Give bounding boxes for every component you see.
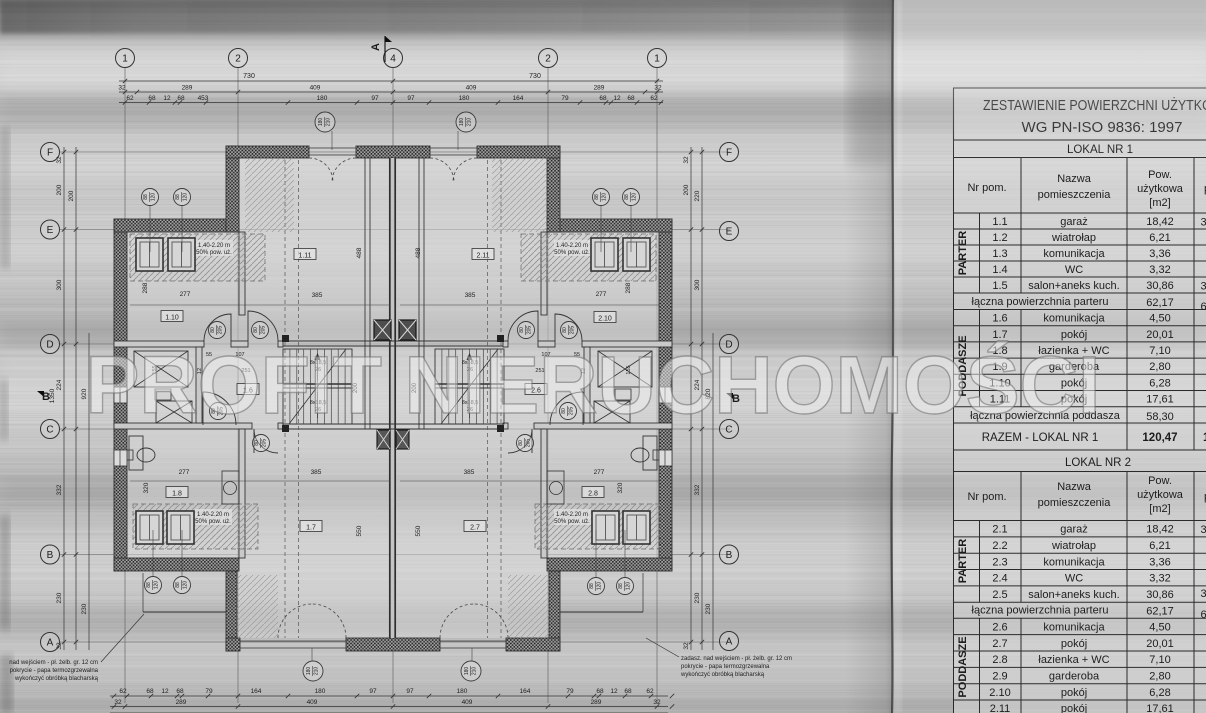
svg-text:2.8: 2.8 xyxy=(992,654,1007,666)
svg-text:210: 210 xyxy=(314,667,320,676)
svg-text:2.9: 2.9 xyxy=(992,671,1007,683)
svg-text:12: 12 xyxy=(613,95,621,102)
svg-text:58,30: 58,30 xyxy=(1146,411,1174,423)
svg-text:277: 277 xyxy=(596,291,607,298)
svg-text:210: 210 xyxy=(467,118,473,127)
svg-text:2.2: 2.2 xyxy=(992,540,1007,552)
svg-text:6: 6 xyxy=(1201,609,1206,621)
svg-text:3,32: 3,32 xyxy=(1149,264,1170,276)
svg-text:1.40-2.20 m: 1.40-2.20 m xyxy=(556,243,588,249)
svg-text:62: 62 xyxy=(650,95,658,102)
svg-text:F: F xyxy=(47,148,53,159)
svg-text:200: 200 xyxy=(68,190,75,201)
svg-text:1.3: 1.3 xyxy=(992,248,1007,260)
svg-text:1.1: 1.1 xyxy=(992,216,1007,228)
svg-text:224: 224 xyxy=(56,379,63,390)
svg-text:pokrycie - papa termozgrzewaln: pokrycie - papa termozgrzewalna xyxy=(10,668,99,674)
svg-text:88: 88 xyxy=(146,582,152,588)
svg-text:120: 120 xyxy=(597,582,603,591)
svg-text:A: A xyxy=(47,638,54,649)
svg-text:2.7: 2.7 xyxy=(992,638,1007,650)
svg-text:PARTER: PARTER xyxy=(957,539,969,583)
svg-text:E: E xyxy=(726,227,733,238)
svg-text:332: 332 xyxy=(56,484,63,495)
svg-text:Nazwa: Nazwa xyxy=(1057,481,1092,493)
svg-text:80: 80 xyxy=(210,327,216,333)
svg-text:88: 88 xyxy=(175,194,181,200)
svg-text:pokój: pokój xyxy=(1061,638,1087,650)
svg-text:1.7: 1.7 xyxy=(306,525,316,532)
svg-text:32: 32 xyxy=(653,699,661,706)
svg-text:B: B xyxy=(47,550,54,561)
svg-text:komunikacja: komunikacja xyxy=(1043,248,1105,260)
svg-text:277: 277 xyxy=(594,469,605,476)
svg-text:300: 300 xyxy=(694,279,701,290)
svg-text:wiatrołap: wiatrołap xyxy=(1051,540,1096,552)
svg-text:3: 3 xyxy=(1201,281,1206,293)
svg-text:62,17: 62,17 xyxy=(1146,606,1174,618)
svg-text:180: 180 xyxy=(459,118,465,127)
svg-text:2: 2 xyxy=(235,54,241,65)
svg-text:7,10: 7,10 xyxy=(1149,654,1170,666)
svg-text:277: 277 xyxy=(179,469,190,476)
svg-text:3,32: 3,32 xyxy=(1149,573,1170,585)
svg-text:2,80: 2,80 xyxy=(1149,361,1170,373)
svg-text:salon+aneks kuch.: salon+aneks kuch. xyxy=(1028,589,1119,601)
svg-text:WC: WC xyxy=(1065,573,1083,585)
svg-text:Pow.: Pow. xyxy=(1148,169,1172,181)
svg-text:288: 288 xyxy=(625,282,632,293)
svg-text:[m2]: [m2] xyxy=(1149,503,1170,515)
svg-text:180: 180 xyxy=(464,667,470,676)
svg-text:1.40-2.20 m: 1.40-2.20 m xyxy=(556,512,588,518)
svg-text:210: 210 xyxy=(326,118,332,127)
svg-text:288: 288 xyxy=(142,282,149,293)
svg-text:1: 1 xyxy=(122,54,128,65)
svg-text:205: 205 xyxy=(262,439,268,448)
svg-text:180: 180 xyxy=(306,667,312,676)
svg-text:200: 200 xyxy=(56,184,63,195)
svg-text:2: 2 xyxy=(545,54,551,65)
svg-text:32: 32 xyxy=(56,156,63,164)
svg-text:2.8: 2.8 xyxy=(588,491,598,498)
svg-text:289: 289 xyxy=(182,85,193,92)
svg-text:użytkowa: użytkowa xyxy=(1137,489,1184,501)
svg-text:50% pow. uż.: 50% pow. uż. xyxy=(195,519,231,525)
svg-text:88: 88 xyxy=(175,582,181,588)
svg-text:488: 488 xyxy=(415,247,422,258)
svg-text:komunikacja: komunikacja xyxy=(1043,556,1105,568)
svg-text:A: A xyxy=(370,43,382,51)
svg-text:2.5: 2.5 xyxy=(992,589,1007,601)
svg-text:453: 453 xyxy=(198,95,209,102)
svg-text:12: 12 xyxy=(610,688,618,695)
svg-text:pokój: pokój xyxy=(1061,329,1087,341)
svg-text:164: 164 xyxy=(513,95,524,102)
svg-text:120: 120 xyxy=(602,193,608,202)
svg-text:1.6: 1.6 xyxy=(992,313,1007,325)
svg-text:205: 205 xyxy=(526,439,532,448)
svg-text:730: 730 xyxy=(529,73,541,80)
svg-text:205: 205 xyxy=(527,326,533,335)
svg-text:289: 289 xyxy=(176,699,187,706)
svg-text:385: 385 xyxy=(465,292,476,299)
svg-text:3,36: 3,36 xyxy=(1149,248,1170,260)
svg-text:230: 230 xyxy=(56,592,63,603)
svg-text:79: 79 xyxy=(561,95,569,102)
svg-text:2,80: 2,80 xyxy=(1149,671,1170,683)
svg-text:salon+aneks kuch.: salon+aneks kuch. xyxy=(1028,280,1119,292)
svg-text:409: 409 xyxy=(310,85,321,92)
svg-text:PROFIT NIERUCHOMOŚCI: PROFIT NIERUCHOMOŚCI xyxy=(86,340,1101,431)
svg-text:32: 32 xyxy=(114,699,122,706)
svg-text:68: 68 xyxy=(596,688,604,695)
svg-text:4,50: 4,50 xyxy=(1149,313,1170,325)
svg-text:F: F xyxy=(726,148,732,159)
svg-text:użytkowa: użytkowa xyxy=(1137,183,1184,195)
svg-text:80: 80 xyxy=(254,440,260,446)
svg-text:68: 68 xyxy=(599,95,607,102)
svg-text:3: 3 xyxy=(1201,524,1206,536)
svg-text:88: 88 xyxy=(624,194,630,200)
svg-text:164: 164 xyxy=(520,688,531,695)
svg-text:68: 68 xyxy=(177,95,185,102)
svg-text:230: 230 xyxy=(694,592,701,603)
svg-text:120: 120 xyxy=(632,193,638,202)
svg-text:6,28: 6,28 xyxy=(1149,377,1170,389)
svg-text:210: 210 xyxy=(472,667,478,676)
svg-text:PODDASZE: PODDASZE xyxy=(957,636,969,697)
svg-text:garaż: garaż xyxy=(1060,524,1088,536)
svg-text:180: 180 xyxy=(315,688,326,695)
svg-text:7,10: 7,10 xyxy=(1149,345,1170,357)
svg-text:180: 180 xyxy=(317,95,328,102)
svg-text:220: 220 xyxy=(694,190,701,201)
svg-text:205: 205 xyxy=(218,326,224,335)
svg-text:88: 88 xyxy=(143,194,149,200)
svg-text:zadasz. nad wejściem - pł. żel: zadasz. nad wejściem - pł. żelb. gr. 12 … xyxy=(681,656,792,662)
svg-text:WC: WC xyxy=(1065,264,1083,276)
svg-text:PARTER: PARTER xyxy=(957,231,969,275)
svg-text:68: 68 xyxy=(146,688,154,695)
svg-text:320: 320 xyxy=(617,482,624,493)
svg-text:Nr pom.: Nr pom. xyxy=(967,182,1006,194)
svg-text:32: 32 xyxy=(683,156,690,164)
svg-text:68: 68 xyxy=(176,688,184,695)
svg-text:LOKAL NR 2: LOKAL NR 2 xyxy=(1065,457,1131,469)
svg-text:62: 62 xyxy=(646,688,654,695)
svg-text:1.10: 1.10 xyxy=(165,315,179,322)
svg-text:komunikacja: komunikacja xyxy=(1043,313,1105,325)
svg-text:1.40-2.20 m: 1.40-2.20 m xyxy=(197,512,229,518)
svg-text:2.10: 2.10 xyxy=(598,316,612,323)
svg-text:2.1: 2.1 xyxy=(992,524,1007,536)
svg-text:A: A xyxy=(726,637,733,648)
svg-text:1: 1 xyxy=(654,54,660,65)
svg-text:3: 3 xyxy=(1201,217,1206,229)
svg-text:88: 88 xyxy=(594,194,600,200)
svg-text:12: 12 xyxy=(163,95,171,102)
svg-text:1.5: 1.5 xyxy=(992,280,1007,292)
svg-text:409: 409 xyxy=(466,85,477,92)
svg-text:pokrycie - papa termozgrzewaln: pokrycie - papa termozgrzewalna xyxy=(681,664,770,670)
svg-text:32: 32 xyxy=(683,642,690,650)
svg-text:2.10: 2.10 xyxy=(989,687,1010,699)
svg-text:32: 32 xyxy=(654,85,662,92)
svg-text:120,47: 120,47 xyxy=(1142,432,1177,444)
svg-text:385: 385 xyxy=(464,469,475,476)
svg-text:1.2: 1.2 xyxy=(992,232,1007,244)
svg-text:Nr pom.: Nr pom. xyxy=(967,491,1006,503)
svg-text:2.4: 2.4 xyxy=(992,573,1007,585)
svg-text:1.40-2.20 m: 1.40-2.20 m xyxy=(198,243,230,249)
svg-text:C: C xyxy=(46,425,53,436)
svg-text:320: 320 xyxy=(143,482,150,493)
svg-text:garderoba: garderoba xyxy=(1049,671,1100,683)
svg-text:łączna powierzchnia parteru: łączna powierzchnia parteru xyxy=(972,296,1109,308)
svg-text:180: 180 xyxy=(457,688,468,695)
svg-text:wiatrołap: wiatrołap xyxy=(1051,232,1096,244)
svg-text:385: 385 xyxy=(311,469,322,476)
svg-text:62: 62 xyxy=(126,95,134,102)
svg-text:[m2]: [m2] xyxy=(1149,197,1170,209)
svg-text:200: 200 xyxy=(683,184,690,195)
svg-text:32: 32 xyxy=(118,85,126,92)
svg-text:62: 62 xyxy=(119,688,127,695)
svg-text:B: B xyxy=(726,550,733,561)
svg-text:3,36: 3,36 xyxy=(1149,556,1170,568)
svg-text:62,17: 62,17 xyxy=(1146,297,1174,309)
svg-text:30,86: 30,86 xyxy=(1146,589,1174,601)
svg-text:17,61: 17,61 xyxy=(1146,394,1174,406)
svg-text:wykończyć obróbką blacharską: wykończyć obróbką blacharską xyxy=(14,676,99,682)
svg-text:pokój: pokój xyxy=(1061,687,1087,699)
svg-text:230: 230 xyxy=(81,603,88,614)
svg-text:E: E xyxy=(47,225,54,236)
svg-text:pokój: pokój xyxy=(1061,703,1087,713)
svg-text:4: 4 xyxy=(390,54,396,65)
svg-text:pomieszczenia: pomieszczenia xyxy=(1038,189,1112,201)
svg-text:97: 97 xyxy=(369,688,377,695)
svg-text:50% pow. uż.: 50% pow. uż. xyxy=(554,250,590,256)
svg-text:50% pow. uż.: 50% pow. uż. xyxy=(196,250,232,256)
svg-text:120: 120 xyxy=(183,581,189,590)
svg-text:łazienka + WC: łazienka + WC xyxy=(1038,654,1109,666)
svg-text:300: 300 xyxy=(56,279,63,290)
svg-text:120: 120 xyxy=(151,193,157,202)
svg-text:97: 97 xyxy=(407,95,415,102)
svg-text:550: 550 xyxy=(356,525,363,536)
svg-text:80: 80 xyxy=(519,327,525,333)
svg-text:205: 205 xyxy=(261,326,267,335)
svg-text:2.11: 2.11 xyxy=(476,253,489,260)
svg-text:12: 12 xyxy=(161,688,169,695)
svg-text:97: 97 xyxy=(406,688,414,695)
svg-text:409: 409 xyxy=(462,699,473,706)
svg-text:garaż: garaż xyxy=(1060,216,1088,228)
svg-text:20,01: 20,01 xyxy=(1146,638,1174,650)
svg-text:nad wejściem - pł. żelb. gr. 1: nad wejściem - pł. żelb. gr. 12 cm xyxy=(9,660,98,666)
svg-text:385: 385 xyxy=(312,292,323,299)
svg-text:164: 164 xyxy=(251,688,262,695)
svg-text:Nazwa: Nazwa xyxy=(1057,173,1092,185)
svg-text:D: D xyxy=(46,340,53,351)
svg-text:1.4: 1.4 xyxy=(992,264,1007,276)
svg-text:30,86: 30,86 xyxy=(1146,280,1174,292)
svg-text:3: 3 xyxy=(1201,588,1206,600)
svg-text:80: 80 xyxy=(562,327,568,333)
svg-text:łączna powierzchnia parteru: łączna powierzchnia parteru xyxy=(972,605,1109,617)
svg-text:332: 332 xyxy=(694,484,701,495)
svg-text:1.8: 1.8 xyxy=(172,491,182,498)
svg-text:488: 488 xyxy=(356,247,363,258)
svg-text:18,42: 18,42 xyxy=(1146,216,1174,228)
svg-text:97: 97 xyxy=(371,95,379,102)
svg-text:RAZEM - LOKAL NR 1: RAZEM - LOKAL NR 1 xyxy=(982,432,1099,444)
svg-text:4,50: 4,50 xyxy=(1149,621,1170,633)
svg-text:50% pow. uż.: 50% pow. uż. xyxy=(554,519,590,525)
svg-text:68: 68 xyxy=(624,688,632,695)
svg-text:88: 88 xyxy=(618,583,624,589)
svg-text:730: 730 xyxy=(243,73,255,80)
svg-text:6: 6 xyxy=(1201,301,1206,313)
svg-text:32: 32 xyxy=(56,642,63,650)
svg-text:409: 409 xyxy=(307,699,318,706)
svg-text:2.6: 2.6 xyxy=(992,621,1007,633)
svg-text:79: 79 xyxy=(566,688,574,695)
svg-text:120: 120 xyxy=(183,193,189,202)
svg-text:20,01: 20,01 xyxy=(1146,329,1174,341)
svg-text:17,61: 17,61 xyxy=(1146,703,1174,713)
svg-text:88: 88 xyxy=(589,583,595,589)
svg-text:1.11: 1.11 xyxy=(298,253,311,260)
svg-text:6,21: 6,21 xyxy=(1149,232,1170,244)
svg-text:230: 230 xyxy=(705,603,712,614)
svg-text:Pow.: Pow. xyxy=(1148,475,1172,487)
svg-text:2.3: 2.3 xyxy=(992,556,1007,568)
svg-text:68: 68 xyxy=(148,95,156,102)
svg-text:277: 277 xyxy=(180,291,191,298)
svg-text:6,28: 6,28 xyxy=(1149,687,1170,699)
svg-text:180: 180 xyxy=(318,118,324,127)
svg-text:68: 68 xyxy=(627,95,635,102)
svg-text:komunikacja: komunikacja xyxy=(1043,621,1105,633)
svg-text:180: 180 xyxy=(459,95,470,102)
svg-text:6,21: 6,21 xyxy=(1149,540,1170,552)
svg-text:120: 120 xyxy=(626,582,632,591)
svg-text:pomieszczenia: pomieszczenia xyxy=(1038,497,1112,509)
svg-text:205: 205 xyxy=(570,326,576,335)
svg-text:80: 80 xyxy=(518,440,524,446)
svg-text:289: 289 xyxy=(594,85,605,92)
svg-text:79: 79 xyxy=(205,688,213,695)
svg-text:550: 550 xyxy=(415,525,422,536)
svg-text:120: 120 xyxy=(154,581,160,590)
svg-text:289: 289 xyxy=(591,699,602,706)
svg-text:wykończyć obróbką blacharską: wykończyć obróbką blacharską xyxy=(680,672,765,678)
svg-text:2.11: 2.11 xyxy=(990,703,1011,713)
svg-text:1350: 1350 xyxy=(49,388,56,403)
svg-text:1.7: 1.7 xyxy=(992,329,1007,341)
svg-text:18,42: 18,42 xyxy=(1146,524,1174,536)
svg-text:80: 80 xyxy=(253,327,259,333)
svg-text:2.7: 2.7 xyxy=(470,525,480,532)
